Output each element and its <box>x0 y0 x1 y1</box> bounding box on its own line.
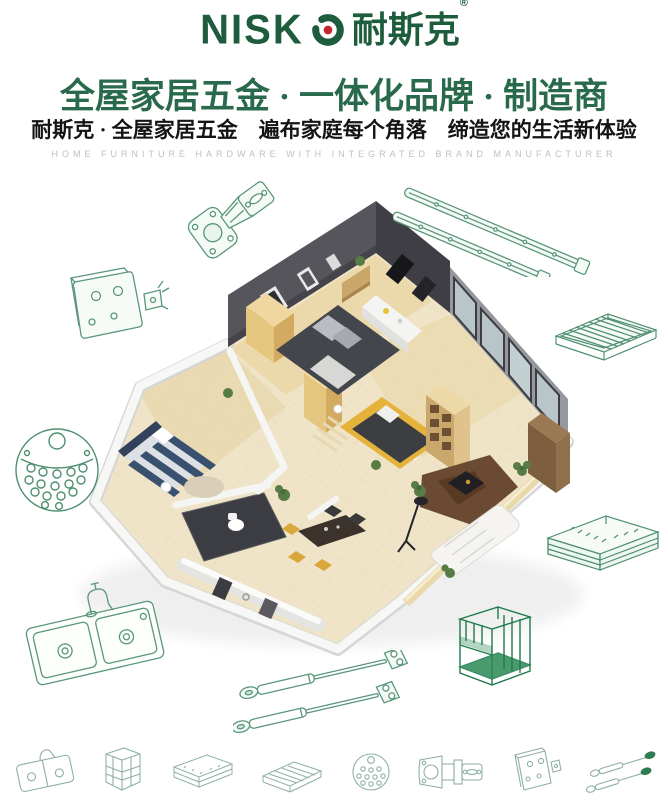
wire-shelf-icon <box>550 306 664 372</box>
headline: 全屋家居五金 · 一体化品牌 · 制造商 <box>0 68 668 119</box>
wire-rack-organizer-icon <box>446 593 544 697</box>
cabinet-hinge-icon <box>183 181 281 259</box>
mounting-bracket-icon <box>58 266 180 350</box>
logo-chinese: 耐斯克® <box>352 12 468 48</box>
cabinet-frame-mini-icon <box>99 740 147 794</box>
struts-mini-icon <box>586 746 660 794</box>
logo-letters: NISK <box>200 9 304 51</box>
sink-mini-icon <box>12 742 76 794</box>
poster: NISK 耐斯克® 全屋家居五金 · 一体化品牌 · 制造商 耐斯克 · 全屋家… <box>0 0 668 800</box>
logo-cn-text: 耐斯克 <box>352 9 460 50</box>
product-icons-row <box>12 736 660 794</box>
subheadline: 耐斯克 · 全屋家居五金 遍布家庭每个角落 缔造您的生活新体验 <box>0 114 668 144</box>
pullout-basket-icon <box>540 506 666 582</box>
brand-logo: NISK 耐斯克® <box>0 10 668 50</box>
perforated-disc-icon <box>10 423 106 517</box>
shelf-mini-icon <box>259 754 325 794</box>
logo-o-target-icon <box>311 13 345 47</box>
gas-struts-icon <box>233 650 425 738</box>
basket-mini-icon <box>170 748 236 794</box>
disc-mini-icon <box>349 750 393 794</box>
tagline-en: HOME FURNITURE HARDWARE WITH INTEGRATED … <box>0 149 668 159</box>
bracket-mini-icon <box>509 746 563 794</box>
kitchen-sink-icon <box>18 582 170 686</box>
registered-mark: ® <box>460 0 468 9</box>
drawer-slides-icon <box>393 183 621 277</box>
hinge-mini-icon <box>416 750 486 794</box>
